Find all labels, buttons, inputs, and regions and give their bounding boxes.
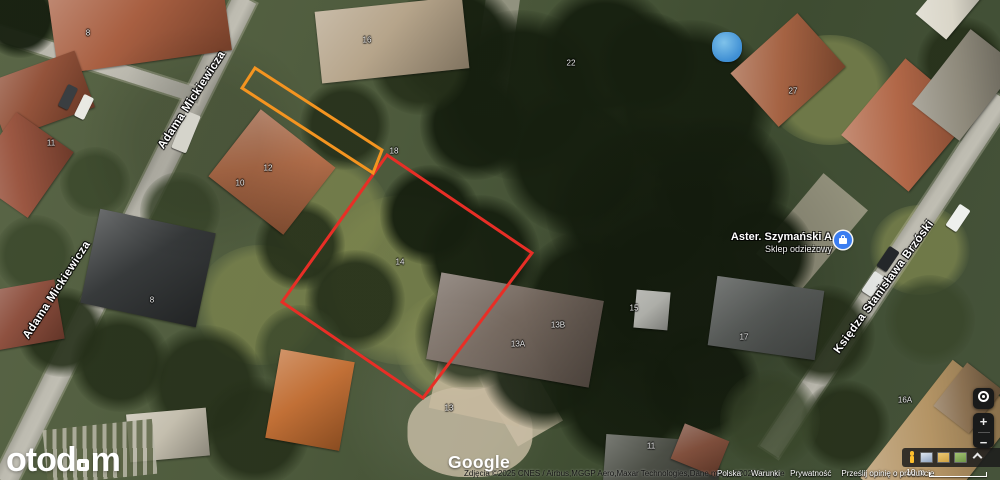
otodom-logo-prefix: otod <box>6 441 76 479</box>
footer-link-terms[interactable]: Warunki <box>751 469 780 478</box>
scale-bar <box>929 472 987 477</box>
footer-links: Polska Warunki Prywatność Prześlij opini… <box>717 469 934 478</box>
poi-name: Aster. Szymański A <box>731 231 832 243</box>
map-viewport[interactable]: 811101216182227148151713B13A1316A11Adama… <box>0 0 1000 480</box>
house-number-label: 13A <box>511 340 525 349</box>
footer-link-privacy[interactable]: Prywatność <box>790 469 831 478</box>
shopping-bag-icon[interactable] <box>834 231 852 249</box>
house-number-label: 11 <box>647 442 655 451</box>
house-number-label: 18 <box>390 147 399 156</box>
compass-target-icon <box>978 391 989 402</box>
layer-thumbnail-terrain[interactable] <box>937 452 950 463</box>
house-number-label: 16A <box>898 396 912 405</box>
pegman-icon[interactable] <box>907 451 916 464</box>
map-scale: 10 m <box>906 467 987 477</box>
house-number-label: 13B <box>551 321 565 330</box>
otodom-logo-square <box>77 459 89 471</box>
otodom-logo-suffix: m <box>91 441 120 479</box>
scale-label: 10 m <box>906 467 925 477</box>
house-number-label: 12 <box>264 164 273 173</box>
house-number-label: 14 <box>396 258 405 267</box>
otodom-logo: otodm <box>6 441 120 480</box>
layer-thumbnail-satellite[interactable] <box>920 452 933 463</box>
zoom-out-button[interactable]: − <box>973 435 994 451</box>
house-number-label: 16 <box>363 36 372 45</box>
house-number-label: 8 <box>150 296 154 305</box>
zoom-in-button[interactable]: + <box>973 414 994 430</box>
zoom-controls: + − <box>973 413 994 448</box>
house-number-label: 8 <box>86 29 90 38</box>
layer-thumbnail-map[interactable] <box>954 452 967 463</box>
house-number-label: 15 <box>630 304 639 313</box>
house-number-label: 13 <box>445 404 454 413</box>
house-number-label: 17 <box>740 333 749 342</box>
poi-category: Sklep odzieżowy <box>765 244 832 254</box>
house-number-label: 11 <box>47 139 55 148</box>
house-number-label: 10 <box>236 179 245 188</box>
chevron-up-icon[interactable] <box>973 453 983 463</box>
house-number-label: 27 <box>789 87 798 96</box>
my-location-button[interactable] <box>973 388 994 409</box>
house-number-label: 22 <box>567 59 576 68</box>
footer-link-country[interactable]: Polska <box>717 469 741 478</box>
